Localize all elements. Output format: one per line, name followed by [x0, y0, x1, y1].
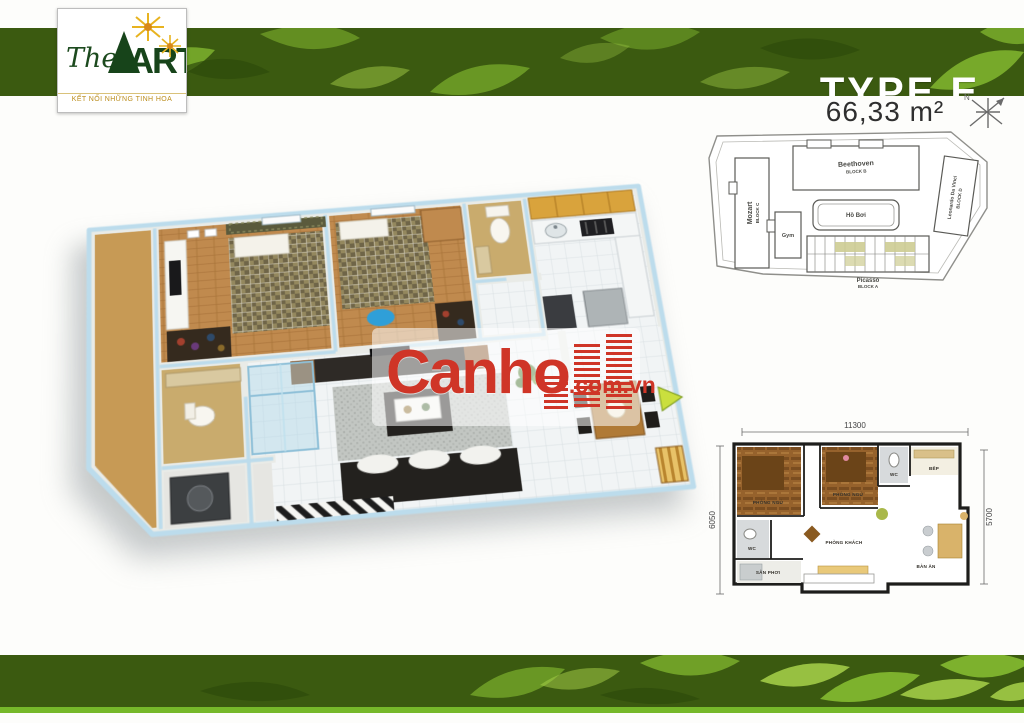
block-beethoven: Beethoven BLOCK B — [793, 140, 919, 190]
logo-tagline: KẾT NỐI NHỮNG TINH HOA — [58, 93, 186, 103]
svg-text:Hồ Bơi: Hồ Bơi — [846, 213, 866, 219]
dim-right: 5700 — [985, 508, 994, 526]
fridge — [583, 288, 628, 327]
block-mozart: Mozart BLOCK C — [729, 158, 775, 268]
label-kitchen: BẾP — [929, 465, 939, 471]
svg-text:N: N — [964, 93, 970, 102]
svg-text:Gym: Gym — [782, 233, 794, 239]
leaf-decoration-bottom — [0, 655, 1024, 707]
svg-text:BLOCK C: BLOCK C — [755, 202, 760, 223]
label-laundry: SÂN PHƠI — [756, 569, 780, 575]
footer-accent-strip — [0, 707, 1024, 713]
block-gym: Gym — [775, 212, 801, 258]
block-picasso: Picasso BLOCK A — [807, 236, 929, 289]
dim-top: 11300 — [844, 421, 866, 430]
shoe-bench — [656, 446, 689, 483]
svg-text:BLOCK A: BLOCK A — [858, 284, 879, 289]
tower-2 — [574, 344, 600, 407]
dim-left: 6050 — [708, 511, 717, 529]
label-wc1: WC — [890, 472, 899, 477]
floor-plan-2d: 11300 6050 5700 — [706, 416, 994, 612]
cooktop — [579, 218, 614, 237]
label-wc2: WC — [748, 546, 757, 551]
site-plan: Mozart BLOCK C Beethoven BLOCK B Hồ Bơi … — [703, 120, 995, 306]
page: TYPE E The ART KẾT NỐI NHỮNG TINH HOA 66… — [0, 0, 1024, 723]
label-bedroom2: PHÒNG NGỦ — [833, 490, 864, 497]
wardrobe1 — [167, 326, 232, 362]
project-logo: The ART KẾT NỐI NHỮNG TINH HOA — [57, 8, 187, 113]
sunburst-icon — [132, 13, 164, 41]
plan2d-wc2 — [737, 520, 769, 558]
label-bedroom1: PHÒNG NGỦ — [753, 498, 784, 505]
tower-1 — [544, 376, 568, 409]
watermark-building-icon — [542, 332, 634, 424]
desk — [421, 207, 465, 242]
label-living: PHÒNG KHÁCH — [826, 538, 863, 545]
kitchen-island-dark — [542, 294, 576, 330]
footer-banner: 2 PHÒNG NGỦ / 2 PHÒNG TẮM — [0, 655, 1024, 707]
watermark: Canho.com.vn — [372, 328, 640, 426]
svg-text:Mozart: Mozart — [747, 201, 754, 224]
label-dining: BÀN ĂN — [916, 563, 936, 569]
block-pool: Hồ Bơi — [813, 200, 899, 230]
tower-3 — [606, 334, 632, 409]
